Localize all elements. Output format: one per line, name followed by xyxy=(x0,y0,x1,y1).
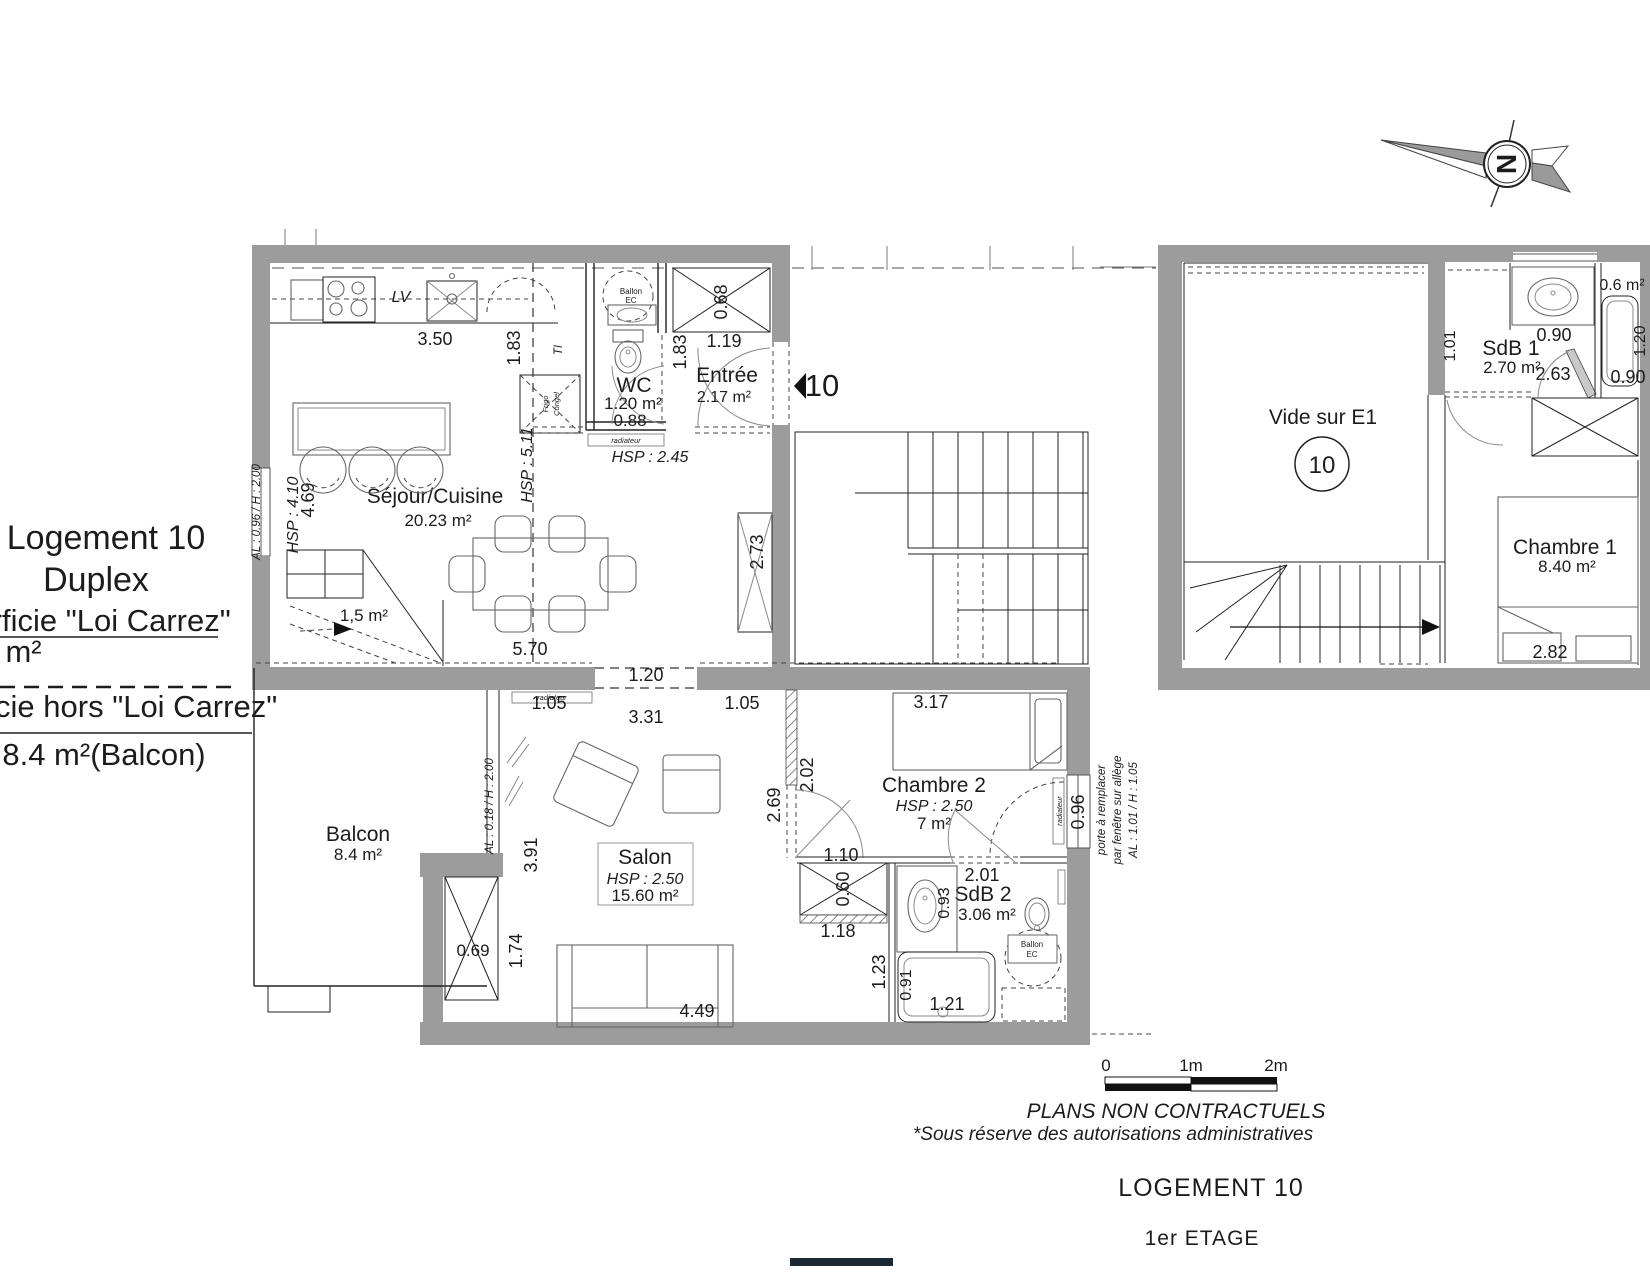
disclaimer-2: *Sous réserve des autorisations administ… xyxy=(913,1124,1314,1145)
fridge-label-1: Frigo xyxy=(541,395,550,412)
vide-name: Vide sur E1 xyxy=(1269,406,1377,429)
room-chambre1: Chambre 1 8.40 m² 2.82 xyxy=(1428,395,1638,665)
window-note-balcon: AL : 0.18 / H : 2.00 xyxy=(484,758,496,855)
kitchen-island xyxy=(293,403,450,493)
dim-sdb2-121: 1.21 xyxy=(929,994,964,1014)
dim-salon-269: 2.69 xyxy=(764,787,784,822)
chambre2-note-3: AL : 1.01 / H : 1.05 xyxy=(1128,762,1140,859)
hsp-hall: HSP : 2.45 xyxy=(612,449,689,466)
scale-0: 0 xyxy=(1101,1056,1110,1075)
scale-2m: 2m xyxy=(1264,1056,1288,1075)
dim-sdb1-101: 1.01 xyxy=(1442,330,1459,361)
radiator-label: radiateur xyxy=(1055,796,1064,826)
stool-icon xyxy=(300,447,346,493)
duct-box: 0.69 xyxy=(445,877,498,1000)
stair-area-label: 1,5 m² xyxy=(340,606,389,625)
counter-arc xyxy=(487,278,555,312)
ballon-label-2: EC xyxy=(1026,950,1037,959)
dim-chambre2-096: 0.96 xyxy=(1068,794,1088,829)
toilet-icon xyxy=(613,330,643,373)
page-title: Logement 10 xyxy=(7,519,206,557)
ballon-label-1: Ballon xyxy=(1021,940,1043,949)
sdb2-name: SdB 2 xyxy=(954,883,1011,906)
dim-salon-331: 3.31 xyxy=(628,707,663,727)
dim-salon-391: 3.91 xyxy=(521,837,541,872)
unit-entrance-marker: 10 xyxy=(794,368,839,403)
dim-salon-123: 1.23 xyxy=(869,954,889,989)
dim-salon-105b: 1.05 xyxy=(724,693,759,713)
interior-stairs: 1,5 m² xyxy=(287,550,443,666)
dim-sdb2-091: 0.91 xyxy=(898,969,915,1000)
armchair-icon xyxy=(663,755,720,813)
disclaimer-1: PLANS NON CONTRACTUELS xyxy=(1027,1100,1326,1123)
room-wc: Ballon EC WC 1.20 m² 0.88 radiateur xyxy=(586,263,666,446)
hsp-kitchen: HSP : 5.11 xyxy=(519,427,536,503)
dim-entree-119: 1.19 xyxy=(706,331,741,351)
floor-label: 1er ETAGE xyxy=(1145,1227,1260,1250)
salon-area: 15.60 m² xyxy=(611,886,678,905)
north-label: N xyxy=(1491,154,1522,174)
bed-icon xyxy=(1498,497,1638,663)
salon-name: Salon xyxy=(618,846,672,869)
dim-sdb1-090a: 0.90 xyxy=(1536,325,1571,345)
title-block: Logement 10 Duplex Superficie "Loi Carre… xyxy=(0,519,277,772)
fridge-icon: Frigo Congel xyxy=(520,375,580,433)
dim-salon-118: 1.18 xyxy=(820,921,855,941)
chambre2-note-1: porte à remplacer xyxy=(1096,764,1108,856)
hatched-wall xyxy=(786,690,797,785)
floorplan-page: Logement 10 Duplex Superficie "Loi Carre… xyxy=(0,0,1650,1275)
chambre1-name: Chambre 1 xyxy=(1513,536,1617,559)
water-heater-icon: Ballon EC xyxy=(603,271,656,325)
armchair-icon xyxy=(552,740,640,828)
footer-bar xyxy=(790,1258,893,1266)
entree-area: 2.17 m² xyxy=(697,389,752,406)
wardrobe-icon xyxy=(1532,398,1638,456)
wc-door-dim: 0.88 xyxy=(613,411,646,430)
dim-sejour-273: 2.73 xyxy=(747,534,767,569)
ballon-label-1: Ballon xyxy=(620,287,642,296)
sdb1-area: 2.70 m² xyxy=(1483,358,1541,377)
ti-label: TI xyxy=(553,344,565,355)
dim-chambre2-202: 2.02 xyxy=(797,757,817,792)
chambre2-note-2: par fenêtre sur allège xyxy=(1112,756,1124,866)
carrez-label: Superficie "Loi Carrez" xyxy=(0,603,231,638)
sdb2-area: 3.06 m² xyxy=(958,905,1016,924)
dim-entree-183: 1.83 xyxy=(670,334,690,369)
unit-label: LOGEMENT 10 xyxy=(1118,1174,1304,1202)
dim-chambre2-110: 1.10 xyxy=(823,845,858,865)
hors-carrez-label: Superficie hors "Loi Carrez" xyxy=(0,689,277,724)
level2-stairs xyxy=(1184,562,1445,664)
dim-douche-090: 0.90 xyxy=(1610,367,1645,387)
entrance-unit-number: 10 xyxy=(805,368,839,403)
chambre2-name: Chambre 2 xyxy=(882,774,986,797)
room-douche: 0.6 m² 1.20 0.90 xyxy=(1595,263,1649,398)
dim-sejour-570: 5.70 xyxy=(512,639,547,659)
window-box: 2.73 xyxy=(738,513,772,632)
dim-sdb2-201: 2.01 xyxy=(964,865,999,885)
ballon-label-2: EC xyxy=(625,296,636,305)
room-sdb1: 0.90 SdB 1 2.70 m² 2.63 1.01 xyxy=(1442,263,1596,398)
stair-arrow-icon xyxy=(1422,619,1440,635)
floorplan-canvas: Logement 10 Duplex Superficie "Loi Carre… xyxy=(0,0,1650,1275)
dim-salon-174: 1.74 xyxy=(506,933,526,968)
dim-salon-105a: 1.05 xyxy=(531,693,566,713)
sejour-area: 20.23 m² xyxy=(404,511,471,530)
entree-name: Entrée xyxy=(696,364,758,387)
dining-table xyxy=(449,516,636,632)
chambre2-area: 7 m² xyxy=(917,814,951,833)
balcon-name: Balcon xyxy=(326,823,390,846)
dim-sdb2-093: 0.93 xyxy=(936,887,953,918)
carrez-value: 36 m² xyxy=(0,634,42,669)
fridge-label-2: Congel xyxy=(552,392,561,416)
washbasin-icon xyxy=(1528,278,1578,316)
scale-bar: 0 1m 2m xyxy=(1101,1056,1288,1091)
dim-balcon-069: 0.69 xyxy=(456,941,489,960)
footer: PLANS NON CONTRACTUELS *Sous réserve des… xyxy=(790,1100,1325,1266)
dim-opening-120: 1.20 xyxy=(628,665,663,685)
vide-unit-number: 10 xyxy=(1309,452,1336,479)
dim-entree-068: 0.68 xyxy=(711,284,731,319)
dim-salon-449: 4.49 xyxy=(679,1001,714,1021)
water-heater-icon: Ballon EC xyxy=(1005,930,1061,986)
scale-1m: 1m xyxy=(1179,1056,1203,1075)
room-balcon: Balcon 8.4 m² AL : 0.18 / H : 2.00 0.69 xyxy=(254,668,499,1012)
storage-box: 0.60 xyxy=(800,863,887,915)
chambre2-hsp: HSP : 2.50 xyxy=(896,798,973,815)
dim-chambre2-317: 3.17 xyxy=(913,692,948,712)
radiator-label: radiateur xyxy=(611,436,641,445)
north-compass-icon: N xyxy=(1381,120,1570,207)
chambre1-area: 8.40 m² xyxy=(1538,557,1596,576)
room-sdb2: 2.01 SdB 2 3.06 m² 0.93 Ballon EC 1. xyxy=(889,863,1065,1022)
dishwasher-label: LV xyxy=(392,289,412,306)
room-sejour-cuisine: LV 3.50 1.83 Frigo Congel TI HSP : 5.11 … xyxy=(251,263,772,685)
sejour-name: Séjour/Cuisine xyxy=(367,485,504,508)
cabinet-dashed xyxy=(1002,988,1065,1021)
window-note-sejour: AL : 0.96 / H : 2.00 xyxy=(251,464,263,561)
sdb1-name: SdB 1 xyxy=(1482,337,1539,360)
hors-carrez-value: 8.4 m²(Balcon) xyxy=(2,737,205,772)
common-stairwell xyxy=(795,432,1088,664)
sink-icon xyxy=(427,274,477,322)
level2-walls xyxy=(1158,245,1650,690)
dim-chambre1-282: 2.82 xyxy=(1532,642,1567,662)
dim-kitchen-350: 3.50 xyxy=(417,329,452,349)
balcon-area: 8.4 m² xyxy=(334,845,383,864)
dim-kitchen-183: 1.83 xyxy=(504,330,524,365)
dim-douche-120: 1.20 xyxy=(1632,325,1649,356)
dim-salon-060: 0.60 xyxy=(833,871,853,906)
page-subtitle: Duplex xyxy=(43,561,149,599)
room-vide-sur-e1: Vide sur E1 10 xyxy=(1184,263,1428,660)
douche-area: 0.6 m² xyxy=(1599,277,1645,294)
